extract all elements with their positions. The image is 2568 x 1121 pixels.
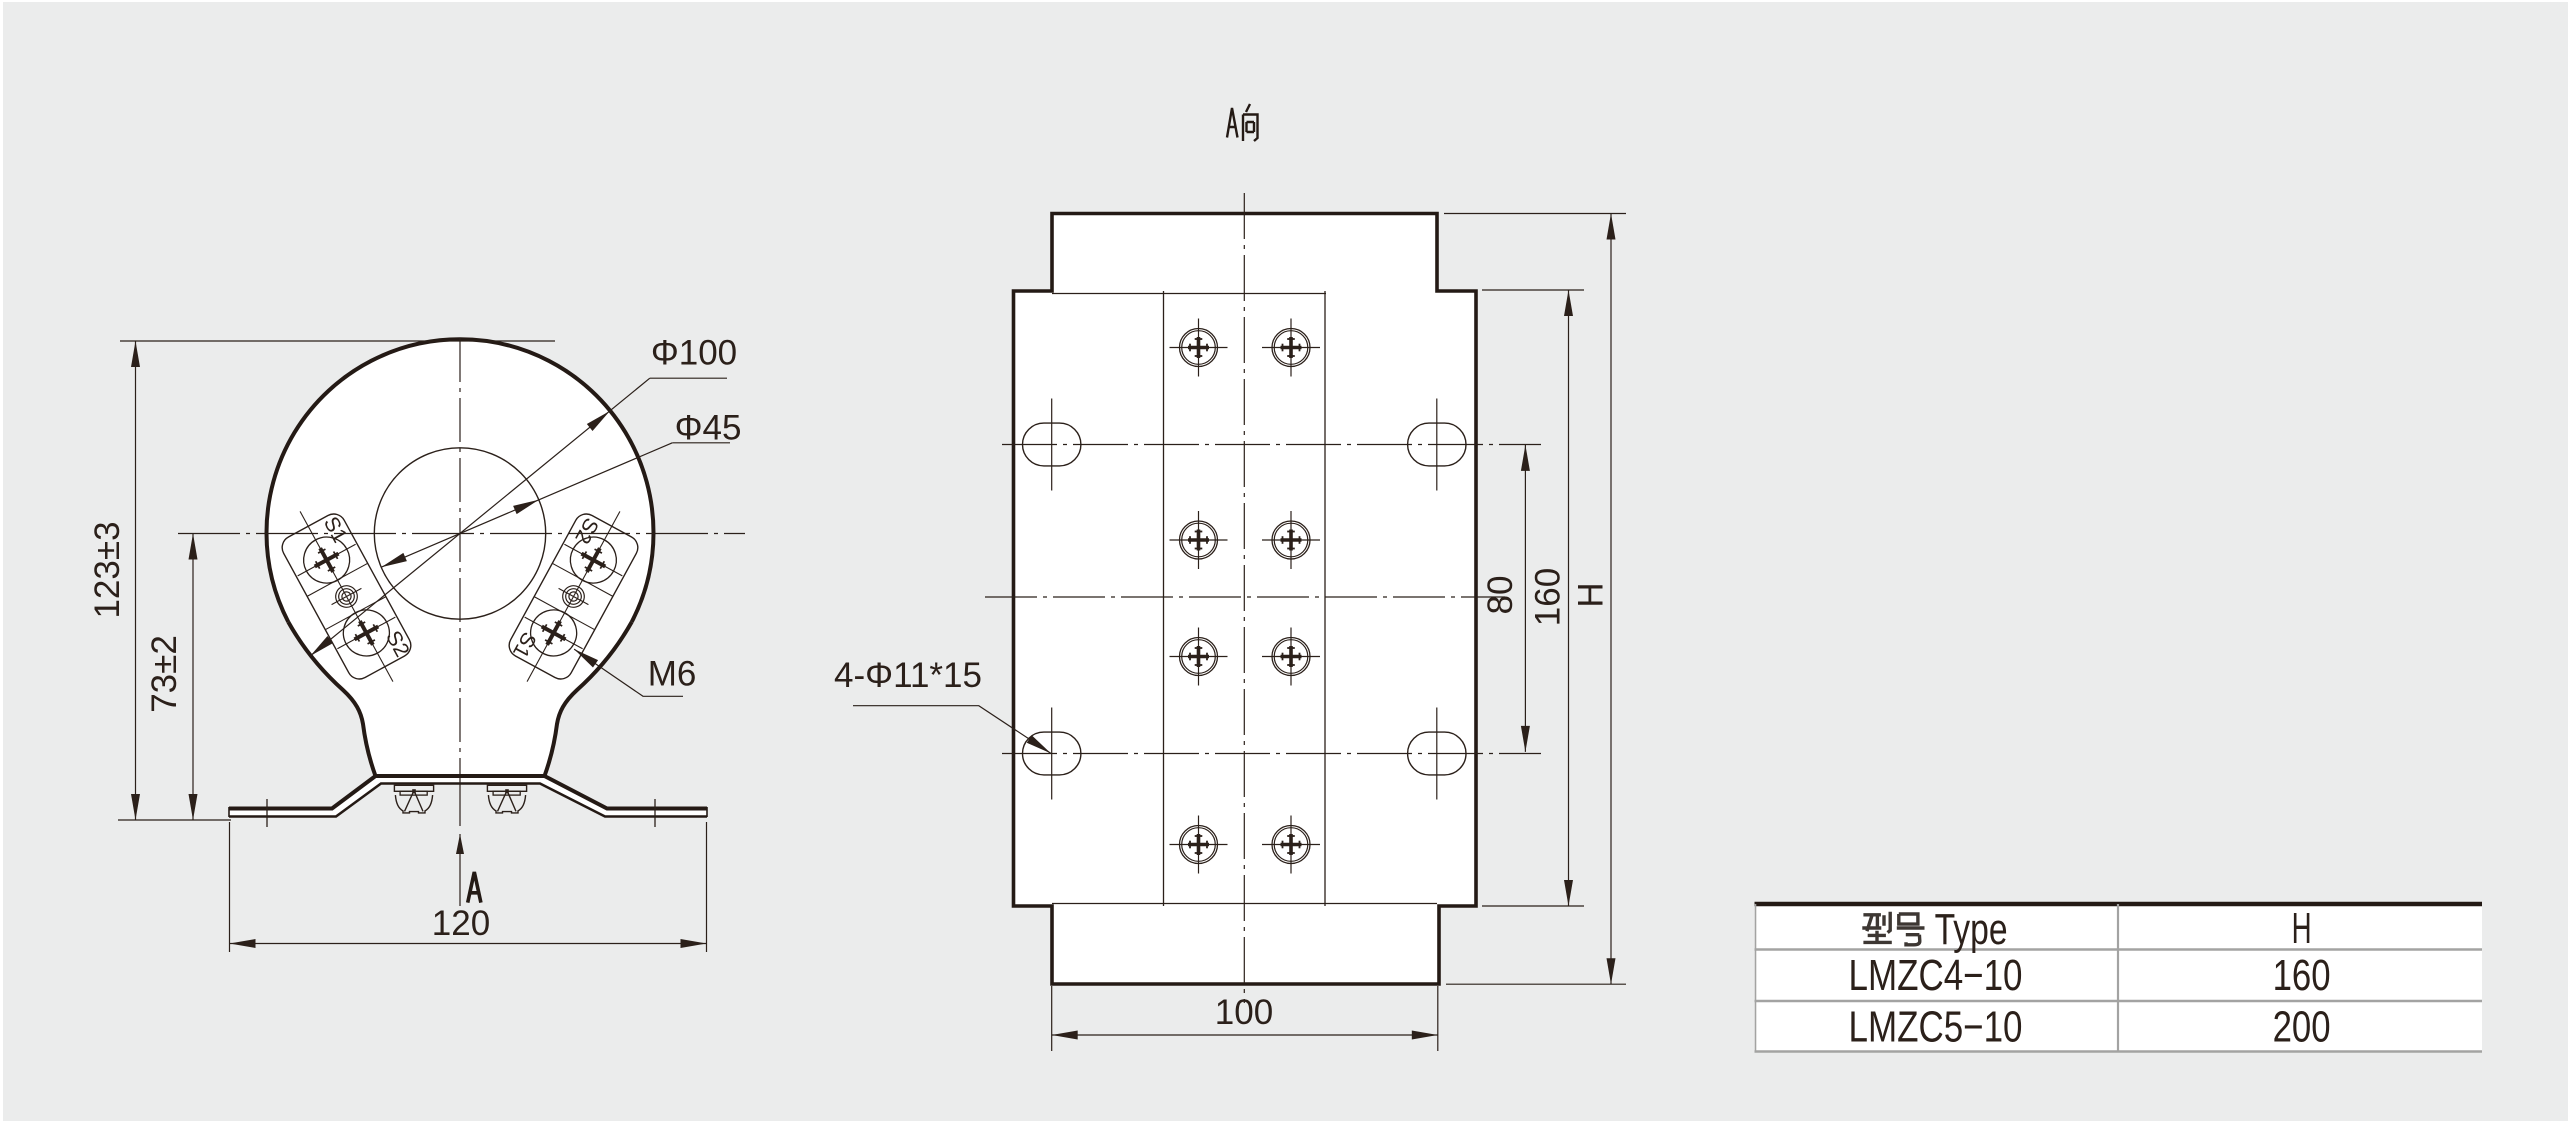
svg-text:Φ45: Φ45 bbox=[675, 409, 742, 448]
svg-text:80: 80 bbox=[1481, 576, 1520, 615]
svg-text:Type: Type bbox=[1935, 905, 2008, 954]
svg-text:73±2: 73±2 bbox=[145, 635, 184, 713]
svg-text:100: 100 bbox=[1215, 993, 1273, 1032]
svg-text:H: H bbox=[1572, 582, 1611, 607]
svg-text:Φ100: Φ100 bbox=[651, 334, 737, 373]
svg-text:LMZC4−10: LMZC4−10 bbox=[1849, 951, 2023, 1000]
svg-text:123±3: 123±3 bbox=[88, 521, 127, 618]
svg-text:160: 160 bbox=[1529, 568, 1568, 626]
svg-text:H: H bbox=[2292, 904, 2312, 953]
svg-text:120: 120 bbox=[432, 904, 490, 943]
svg-text:LMZC5−10: LMZC5−10 bbox=[1849, 1003, 2023, 1052]
svg-text:4-Φ11*15: 4-Φ11*15 bbox=[834, 656, 982, 695]
svg-text:160: 160 bbox=[2273, 951, 2331, 1000]
svg-text:M6: M6 bbox=[648, 655, 697, 694]
svg-text:200: 200 bbox=[2273, 1003, 2331, 1052]
